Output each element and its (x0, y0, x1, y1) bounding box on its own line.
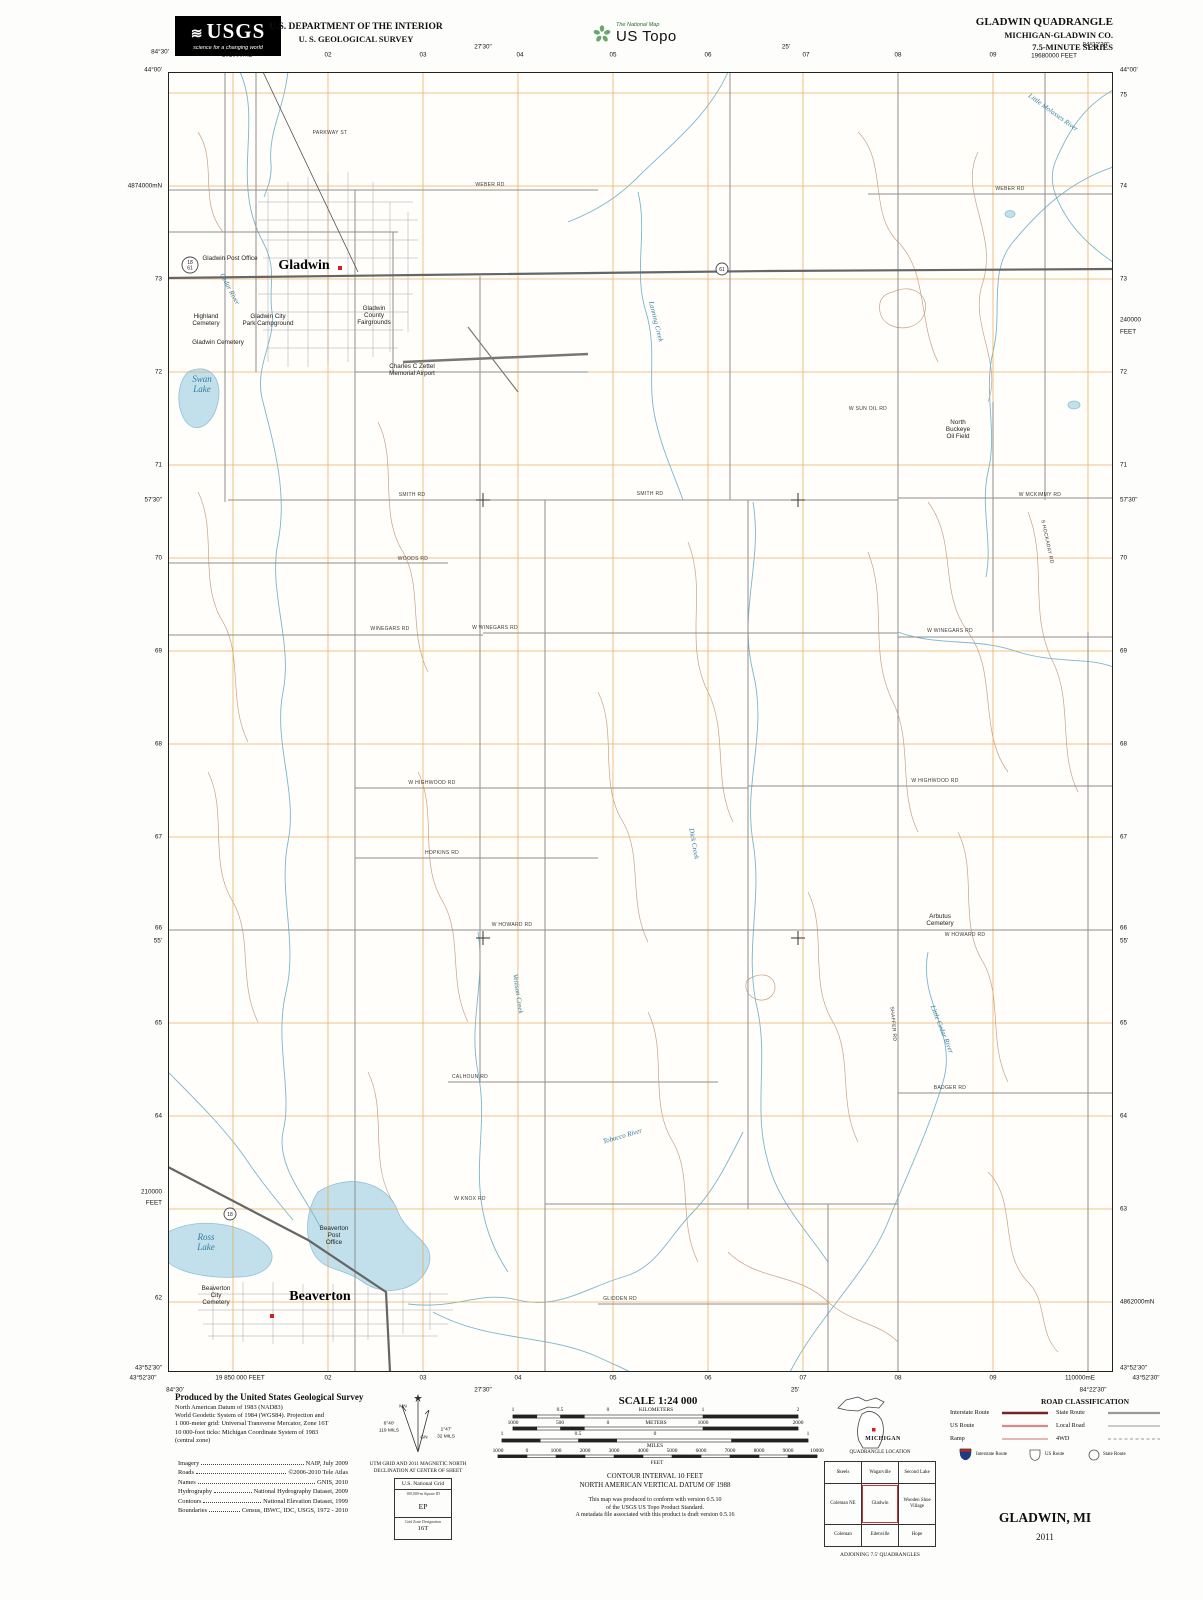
credit-label: Contours (178, 1498, 201, 1505)
adjoining-quad: Coleman (825, 1524, 862, 1546)
credit-label: Names (178, 1479, 196, 1486)
credit-row: ImageryNAIP, July 2009 (178, 1460, 348, 1469)
road-classification-title: ROAD CLASSIFICATION (1005, 1397, 1165, 1406)
scale-tick-label: FEET (651, 1460, 664, 1466)
edge-label-right: 57'30" (1120, 497, 1137, 504)
us-route-shield-icon (1030, 1450, 1040, 1461)
sheet-year: 2011 (965, 1532, 1125, 1542)
scale-tick-label: 1000 (698, 1420, 709, 1426)
department-heading: U.S. DEPARTMENT OF THE INTERIOR U. S. GE… (246, 22, 466, 44)
edge-label-right: FEET (1120, 329, 1136, 336)
quad-name: GLADWIN QUADRANGLE (976, 16, 1113, 28)
ustopo-logo: The National Map US Topo (592, 22, 677, 45)
map-label: Charles C ZettelMemorial Airport (389, 363, 435, 377)
edge-label-left: 210000 (141, 1189, 162, 1196)
edge-label-right: 68 (1120, 741, 1127, 748)
scale-tick-label: 3000 (609, 1448, 620, 1454)
edge-label-left: 65 (155, 1020, 162, 1027)
adjoining-quadrangles-grid: Skeels Wagarville Second Lake Coleman NE… (824, 1461, 936, 1547)
declination-caption-line: DECLINATION AT CENTER OF SHEET (333, 1468, 503, 1475)
map-label: SMITH RD (637, 491, 664, 497)
edge-label-left: 70 (155, 555, 162, 562)
street-grid-layer (198, 172, 453, 1344)
edge-label-top: 08 (894, 52, 901, 59)
map-label: SwanLake (192, 374, 212, 394)
map-label: Tobacco River (602, 1127, 643, 1146)
edge-label-left: 73 (155, 276, 162, 283)
edge-label-right: 63 (1120, 1206, 1127, 1213)
map-label: NorthBuckeyeOil Field (946, 419, 971, 440)
scale-tick-label: 0 (526, 1448, 529, 1454)
scale-title: SCALE 1:24 000 (578, 1395, 738, 1407)
scale-tick-label: 2 (797, 1407, 800, 1413)
credit-leader (203, 1502, 261, 1503)
adjoining-quad: Coleman NE (825, 1484, 862, 1525)
scale-tick-label: 1 (501, 1431, 504, 1437)
edge-label-right: 72 (1120, 369, 1127, 376)
edge-label-right: 44°00' (1120, 67, 1138, 74)
edge-label-right: 69 (1120, 648, 1127, 655)
edge-label-top: 27'30" (474, 44, 491, 51)
map-label: W WINEGARS RD (472, 625, 518, 631)
credit-label: Imagery (178, 1460, 199, 1467)
scale-tick-label: 0 (607, 1407, 610, 1413)
produced-line: World Geodetic System of 1984 (WGS84). P… (175, 1412, 363, 1420)
adjoining-quad-center: Gladwin (861, 1484, 898, 1525)
edge-label-right: 71 (1120, 462, 1127, 469)
map-label: WOODS RD (398, 556, 429, 562)
credit-row: HydrographyNational Hydrography Dataset,… (178, 1488, 348, 1497)
map-label: WEBER RD (995, 186, 1024, 192)
declination-label: 119 MILS (379, 1429, 399, 1434)
edge-label-top: 84°22'30" (1083, 42, 1110, 49)
credit-row: ContoursNational Elevation Dataset, 1999 (178, 1498, 348, 1507)
map-label: Gladwin Post Office (202, 255, 258, 262)
map-label: HighlandCemetery (192, 313, 220, 327)
declination-label: 6°40' (384, 1422, 395, 1427)
map-label: SMITH RD (399, 492, 426, 498)
edge-label-left: 72 (155, 369, 162, 376)
scale-tick-label: 1 (807, 1431, 810, 1437)
map-label: Beaverton (289, 1289, 351, 1304)
legend-interstate: Interstate Route (950, 1409, 989, 1416)
edge-label-left: FEET (146, 1200, 162, 1207)
credit-value: National Hydrography Dataset, 2009 (254, 1488, 348, 1495)
credit-leader (201, 1464, 303, 1465)
credit-row: NamesGNIS, 2010 (178, 1479, 348, 1488)
edge-label-left: 57'30" (145, 497, 162, 504)
map-label: BADGER RD (934, 1085, 967, 1091)
edge-label-top: 06 (704, 52, 711, 59)
dept-line1: U.S. DEPARTMENT OF THE INTERIOR (246, 22, 466, 32)
scale-tick-label: 500 (556, 1420, 564, 1426)
edge-label-top: 05 (609, 52, 616, 59)
map-area: GladwinBeavertonGladwin Post OfficeHighl… (168, 72, 1113, 1372)
produced-line: (central zone) (175, 1437, 363, 1445)
adjoining-quad: Wooden Shoe Village (899, 1484, 936, 1525)
edge-label-left: 68 (155, 741, 162, 748)
credit-value: Census, IBWC, IDC, USGS, 1972 - 2010 (242, 1507, 348, 1514)
scale-tick-label: 8000 (754, 1448, 765, 1454)
map-label: Venison Creek (511, 973, 525, 1015)
legend-local-road: Local Road (1056, 1422, 1085, 1429)
map-label: 1861 (187, 260, 193, 272)
usng-title: U.S. National Grid (395, 1479, 451, 1490)
scale-tick-label: KILOMETERS (639, 1407, 673, 1413)
map-label: Little Cedar River (928, 1003, 955, 1054)
edge-label-top: 07 (802, 52, 809, 59)
adjoining-quad: Edenville (861, 1524, 898, 1546)
highways-layer (168, 269, 1113, 1372)
map-label: W MCKIMMY RD (1019, 492, 1061, 498)
edge-label-left: 55' (154, 938, 162, 945)
usng-square-id: EP (395, 1502, 451, 1511)
edge-label-right: 4862000mN (1120, 1299, 1154, 1306)
topo-map-canvas: GladwinBeavertonGladwin Post OfficeHighl… (168, 72, 1113, 1372)
credit-value: GNIS, 2010 (317, 1479, 348, 1486)
map-label: Dick Creek (687, 827, 701, 861)
scale-tick-label: 0 (607, 1420, 610, 1426)
edge-label-top: 101000mE (222, 52, 252, 59)
scale-tick-label: 1000 (493, 1448, 504, 1454)
legend-state-circle-label: State Route (1103, 1452, 1126, 1457)
map-label: Gladwin (278, 258, 330, 273)
credit-value: National Elevation Dataset, 1999 (263, 1498, 348, 1505)
usgs-tagline: science for a changing world (193, 45, 263, 51)
map-label: SHAFFER RD (888, 1006, 897, 1041)
adjoining-quad: Second Lake (899, 1462, 936, 1484)
map-label: BeavertonCityCemetery (202, 1285, 231, 1306)
legend-state-route: State Route (1056, 1409, 1085, 1416)
scale-tick-label: METERS (645, 1420, 666, 1426)
scale-tick-label: 4000 (638, 1448, 649, 1454)
produced-line: North American Datum of 1983 (NAD83) (175, 1404, 363, 1412)
map-label: RossLake (196, 1232, 215, 1252)
edge-label-left: 4874000mN (128, 183, 162, 190)
edge-label-top: 84°30' (151, 49, 169, 56)
edge-label-right: 43°52'30" (1120, 1365, 1147, 1372)
edge-label-right: 66 (1120, 925, 1127, 932)
map-label: W HOWARD RD (945, 932, 986, 938)
legend-interstate-shield-label: Interstate Route (976, 1452, 1007, 1457)
map-label: PARKWAY ST (313, 130, 348, 136)
state-name: MICHIGAN (848, 1436, 918, 1442)
scale-tick-label: 0 (654, 1431, 657, 1437)
ustopo-label: US Topo (616, 28, 677, 45)
quad-location-dot (872, 1428, 876, 1432)
map-label: Little Molasses River (1026, 91, 1080, 133)
scale-tick-label: 1000 (551, 1448, 562, 1454)
credit-label: Hydrography (178, 1488, 212, 1495)
scale-tick-label: 1 (702, 1407, 705, 1413)
scale-tick-label: 0.5 (575, 1431, 582, 1437)
usgs-topo-sheet: ≋USGS science for a changing world U.S. … (0, 0, 1203, 1600)
quad-state-county: MICHIGAN-GLADWIN CO. (976, 30, 1113, 40)
legend-us-shield-label: US Route (1045, 1452, 1064, 1457)
map-label: Lanning Creek (647, 299, 665, 343)
credit-row: BoundariesCensus, IBWC, IDC, USGS, 1972 … (178, 1507, 348, 1516)
map-label: Gladwin CityPark Campground (242, 313, 294, 327)
scale-tick-label: MILES (647, 1443, 663, 1449)
credit-row: Roads©2006-2010 Tele Atlas (178, 1469, 348, 1478)
edge-label-right: 55' (1120, 938, 1128, 945)
map-label: W HIGHWOOD RD (911, 778, 958, 784)
produced-line: 1 000-meter grid: Universal Transverse M… (175, 1420, 363, 1428)
map-label: GLIDDEN RD (603, 1296, 637, 1302)
usng-zone: 16T (395, 1525, 451, 1532)
declination-caption: UTM GRID AND 2011 MAGNETIC NORTH DECLINA… (333, 1461, 503, 1475)
declination-caption-line: UTM GRID AND 2011 MAGNETIC NORTH (333, 1461, 503, 1468)
edge-label-right: 70 (1120, 555, 1127, 562)
adjoining-quad: Skeels (825, 1462, 862, 1484)
edge-label-right: 65 (1120, 1020, 1127, 1027)
edge-label-right: 240000 (1120, 317, 1141, 324)
scale-tick-label: 0.5 (557, 1407, 564, 1413)
map-label: W SUN OIL RD (849, 406, 887, 412)
conformance-line: This map was produced to conform with ve… (505, 1497, 805, 1505)
state-route-circle-icon (1089, 1450, 1099, 1460)
edge-label-top: 19680000 FEET (1031, 53, 1077, 60)
quadrangle-location-caption: QUADRANGLE LOCATION (810, 1450, 950, 1455)
edge-label-right: 64 (1120, 1113, 1127, 1120)
contours-layer (198, 132, 1078, 1352)
edge-label-left: 67 (155, 834, 162, 841)
declination-diagram (402, 1394, 429, 1452)
buildings-layer (270, 266, 342, 1318)
edge-label-left: 62 (155, 1295, 162, 1302)
credit-leader (214, 1492, 252, 1493)
usng-zone-label: Grid Zone Designation (395, 1520, 451, 1524)
legend-4wd: 4WD (1056, 1435, 1069, 1442)
credit-label: Boundaries (178, 1507, 207, 1514)
credit-leader (209, 1511, 240, 1512)
map-label: CALHOUN RD (452, 1074, 488, 1080)
edge-label-left: 69 (155, 648, 162, 655)
map-label: W HOWARD RD (492, 922, 533, 928)
legend-ramp: Ramp (950, 1435, 965, 1442)
scale-tick-label: 7000 (725, 1448, 736, 1454)
scale-tick-label: 5000 (667, 1448, 678, 1454)
edge-label-top: 25' (782, 44, 790, 51)
edge-label-left: 71 (155, 462, 162, 469)
adjoining-quad: Hope (899, 1524, 936, 1546)
edge-label-top: 02 (324, 52, 331, 59)
edge-label-top: 09 (989, 52, 996, 59)
scale-tick-label: 9000 (783, 1448, 794, 1454)
ustopo-pinwheel-icon (592, 24, 612, 44)
sheet-name: GLADWIN, MI (965, 1510, 1125, 1526)
declination-label: 1°47' (441, 1428, 452, 1433)
edge-label-right: 73 (1120, 276, 1127, 283)
credit-leader (196, 1473, 286, 1474)
map-label: 61 (719, 267, 725, 273)
edge-label-top: 04 (516, 52, 523, 59)
conformance-line: A metadata file associated with this pro… (505, 1512, 805, 1520)
map-label: WEBER RD (475, 182, 504, 188)
scale-tick-label: 2000 (580, 1448, 591, 1454)
edge-label-right: 75 (1120, 92, 1127, 99)
dept-line2: U. S. GEOLOGICAL SURVEY (246, 34, 466, 44)
edge-label-top: 03 (419, 52, 426, 59)
adjoining-quad: Wagarville (861, 1462, 898, 1484)
map-label: GladwinCountyFairgrounds (357, 305, 391, 326)
usng-square-id-label: 100,000-m Square ID (395, 1492, 451, 1496)
legend-us-route: US Route (950, 1422, 974, 1429)
usgs-wave-icon: ≋ (191, 27, 204, 42)
scale-tick-label: 1000 (508, 1420, 519, 1426)
railroad (263, 72, 358, 272)
map-label: WINEGARS RD (370, 626, 409, 632)
edge-label-right: 67 (1120, 834, 1127, 841)
edge-label-right: 74 (1120, 183, 1127, 190)
edge-label-left: 66 (155, 925, 162, 932)
map-label: 18 (227, 1212, 233, 1218)
scale-tick-label: 2000 (793, 1420, 804, 1426)
airport-runways (403, 327, 588, 392)
map-label: Gladwin Cemetery (192, 339, 245, 346)
usng-divider (395, 1517, 451, 1518)
map-label: HOPKINS RD (425, 850, 459, 856)
scale-tick-label: 6000 (696, 1448, 707, 1454)
contour-interval-note: CONTOUR INTERVAL 10 FEET NORTH AMERICAN … (530, 1472, 780, 1490)
produced-title: Produced by the United States Geological… (175, 1392, 363, 1402)
declination-label: 32 MILS (437, 1435, 455, 1440)
conformance-line: of the USGS US Topo Product Standard. (505, 1505, 805, 1513)
usng-box: U.S. National Grid 100,000-m Square ID E… (394, 1478, 452, 1540)
edge-label-left: 43°52'30" (135, 1365, 162, 1372)
credit-label: Roads (178, 1469, 194, 1476)
declination-label: GN (420, 1436, 427, 1441)
map-label: W HIGHWOOD RD (408, 780, 455, 786)
map-label: ArbutusCemetery (926, 913, 954, 927)
declination-label: MN (399, 1405, 406, 1410)
edge-label-left: 44°00' (144, 67, 162, 74)
data-credits-list: ImageryNAIP, July 2009Roads©2006-2010 Te… (178, 1460, 348, 1516)
credit-leader (198, 1483, 315, 1484)
scale-tick-label: 1 (512, 1407, 515, 1413)
map-label: W KNOX RD (454, 1196, 486, 1202)
produced-line: 10 000-foot ticks: Michigan Coordinate S… (175, 1429, 363, 1437)
edge-label-left: 64 (155, 1113, 162, 1120)
contour-interval: CONTOUR INTERVAL 10 FEET (530, 1472, 780, 1481)
map-label: W WINEGARS RD (927, 628, 973, 634)
adjoining-caption: ADJOINING 7.5' QUADRANGLES (810, 1552, 950, 1558)
conformance-note: This map was produced to conform with ve… (505, 1497, 805, 1520)
vertical-datum: NORTH AMERICAN VERTICAL DATUM OF 1988 (530, 1481, 780, 1490)
production-note: Produced by the United States Geological… (175, 1392, 363, 1445)
